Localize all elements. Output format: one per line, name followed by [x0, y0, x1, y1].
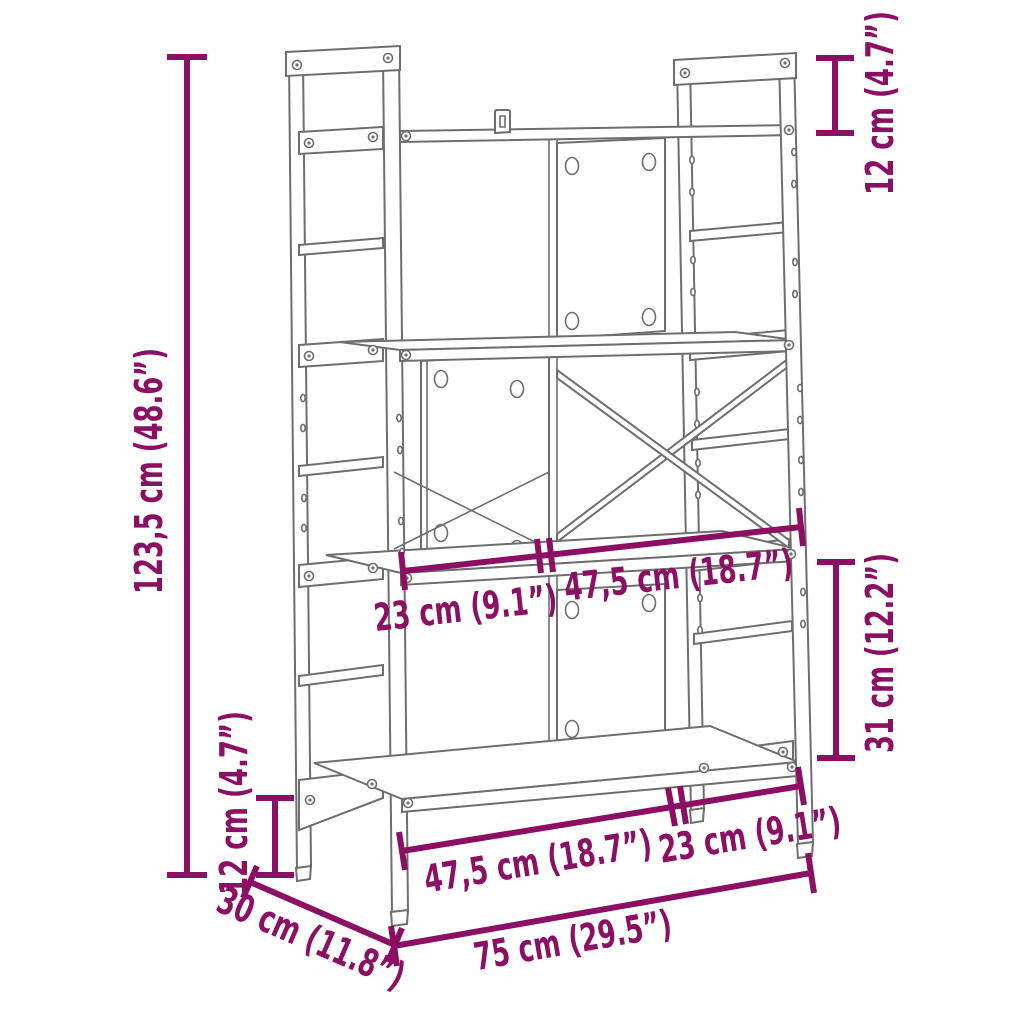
- panel-hole: [566, 721, 579, 738]
- right-front-post: [779, 56, 813, 847]
- left-rear-post: [289, 58, 311, 870]
- panel-hole: [511, 381, 524, 398]
- right-rung-3: [694, 621, 792, 644]
- left-front-foot: [391, 910, 408, 926]
- panel-hole: [435, 371, 448, 388]
- dim-label-tier-height: 31 cm (12.2”): [858, 553, 902, 753]
- dim-top-frame-extension: 12 cm (4.7”): [816, 11, 902, 195]
- left-rung-3: [299, 665, 383, 686]
- dim-label-bottom-width: 47,5 cm (18.7”): [421, 821, 655, 902]
- left-rear-foot: [296, 866, 311, 881]
- dim-label-total-height: 123,5 cm (48.6”): [127, 348, 171, 594]
- wall-anchor-tab: [495, 110, 510, 133]
- right-frame-rear: [677, 62, 793, 823]
- dimension-diagram: 123,5 cm (48.6”) 12 cm (4.7”) 12 cm (4.7…: [0, 0, 1024, 1024]
- dim-leg-height: 12 cm (4.7”): [212, 711, 294, 895]
- left-rung-1: [299, 238, 383, 255]
- right-rung-1: [690, 222, 789, 241]
- dim-total-depth: 30 cm (11.8”): [211, 866, 412, 998]
- cross-brace-2: [557, 370, 789, 548]
- tab-outline: [495, 110, 510, 133]
- dim-label-top-extension: 12 cm (4.7”): [858, 11, 902, 195]
- shelving-unit-diagram: 123,5 cm (48.6”) 12 cm (4.7”) 12 cm (4.7…: [0, 0, 1024, 1024]
- panel-hole: [566, 313, 579, 330]
- dim-total-height: 123,5 cm (48.6”): [127, 57, 207, 875]
- dim-line: [817, 562, 855, 758]
- panel-hole: [643, 309, 656, 326]
- right-rung-2: [692, 429, 790, 450]
- dim-label-leg-height: 12 cm (4.7”): [212, 711, 256, 895]
- dim-line: [256, 798, 294, 875]
- dim-line: [816, 58, 854, 133]
- shelf-1-edge: [400, 125, 795, 142]
- left-top-plate: [286, 46, 400, 76]
- panel-hole: [643, 154, 656, 171]
- dim-line: [167, 57, 207, 875]
- left-rung-2: [299, 457, 383, 476]
- panel-hole: [566, 158, 579, 175]
- right-top-plate: [674, 53, 796, 85]
- dim-tier-height: 31 cm (12.2”): [817, 553, 902, 758]
